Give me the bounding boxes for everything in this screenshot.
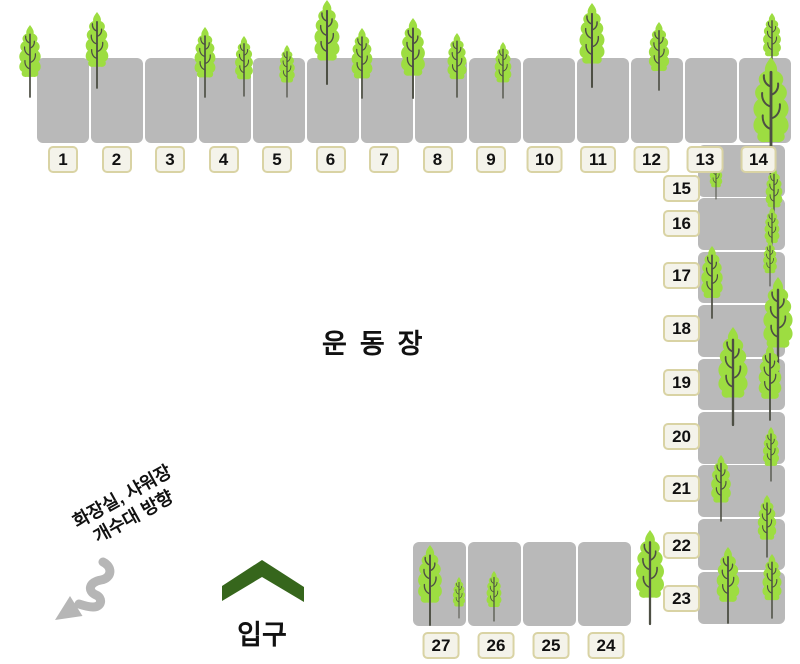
site-number-label: 22	[663, 532, 700, 559]
site-number-label: 11	[580, 146, 616, 173]
site-block	[37, 58, 89, 143]
site-block	[685, 58, 737, 143]
site-block	[91, 58, 143, 143]
site-block	[199, 58, 251, 143]
site-number-label: 19	[663, 369, 700, 396]
site-number-label: 6	[316, 146, 346, 173]
squiggle-arrow-icon	[45, 556, 120, 626]
site-block	[578, 542, 631, 626]
site-block	[631, 58, 683, 143]
site-block	[698, 465, 785, 517]
site-block	[698, 252, 785, 304]
site-number-label: 9	[476, 146, 506, 173]
site-number-label: 18	[663, 315, 700, 342]
site-number-label: 21	[663, 475, 700, 502]
site-number-label: 24	[588, 632, 625, 659]
site-number-label: 27	[423, 632, 460, 659]
site-block	[469, 58, 521, 143]
site-number-label: 16	[663, 210, 700, 237]
site-block	[523, 58, 575, 143]
site-block	[523, 542, 576, 626]
site-number-label: 4	[209, 146, 239, 173]
site-block	[698, 198, 785, 250]
site-number-label: 12	[633, 146, 670, 173]
site-number-label: 2	[102, 146, 132, 173]
site-block	[698, 305, 785, 357]
site-block	[698, 412, 785, 464]
site-block	[468, 542, 521, 626]
site-block	[698, 572, 785, 624]
site-number-label: 15	[663, 175, 700, 202]
tree-icon	[636, 530, 664, 624]
site-number-label: 25	[533, 632, 570, 659]
campground-site-map: 1234567891011121314151617181920212223272…	[0, 0, 800, 664]
site-block	[145, 58, 197, 143]
site-block	[415, 58, 467, 143]
field-label: 운동장	[322, 322, 436, 361]
site-number-label: 7	[369, 146, 399, 173]
site-block	[253, 58, 305, 143]
site-number-label: 3	[155, 146, 185, 173]
facilities-direction-label: 화장실, 샤워장 개수대 방향	[38, 443, 218, 570]
site-number-label: 13	[687, 146, 724, 173]
site-number-label: 5	[262, 146, 292, 173]
site-block	[698, 519, 785, 571]
site-number-label: 20	[663, 423, 700, 450]
site-number-label: 10	[526, 146, 563, 173]
site-block	[698, 359, 785, 411]
entrance-label: 입구	[237, 613, 287, 652]
site-block	[307, 58, 359, 143]
chevron-up-icon	[216, 554, 316, 606]
site-number-label: 1	[48, 146, 78, 173]
site-number-label: 8	[423, 146, 453, 173]
site-block	[361, 58, 413, 143]
site-number-label: 14	[740, 146, 777, 173]
site-number-label: 26	[478, 632, 515, 659]
site-number-label: 17	[663, 262, 700, 289]
site-block	[739, 58, 791, 143]
site-block	[577, 58, 629, 143]
site-number-label: 23	[663, 585, 700, 612]
site-block	[413, 542, 466, 626]
